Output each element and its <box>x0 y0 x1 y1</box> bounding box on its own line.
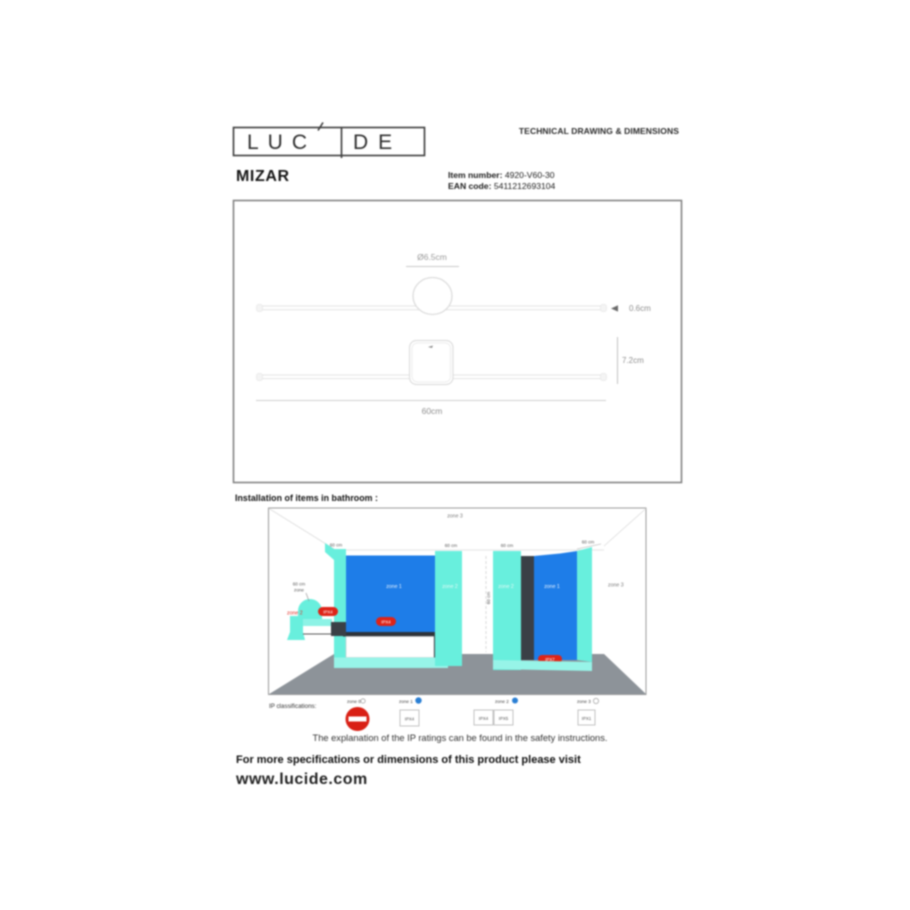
svg-text:0.6cm: 0.6cm <box>629 304 651 313</box>
svg-text:60 cm: 60 cm <box>293 582 306 587</box>
svg-text:60 cm: 60 cm <box>330 543 343 548</box>
svg-text:60 cm: 60 cm <box>501 543 514 548</box>
svg-text:IPX4: IPX4 <box>323 610 333 615</box>
svg-text:60 cm: 60 cm <box>486 592 491 605</box>
svg-text:60cm: 60cm <box>422 406 443 416</box>
svg-text:zone: zone <box>294 588 304 593</box>
svg-text:zone 3: zone 3 <box>577 699 591 704</box>
svg-text:60 cm: 60 cm <box>582 540 595 545</box>
svg-text:zone 2: zone 2 <box>495 699 509 704</box>
svg-text:IPX1: IPX1 <box>582 716 592 721</box>
svg-text:IP classifications:: IP classifications: <box>269 703 317 710</box>
svg-text:IPX4: IPX4 <box>381 620 391 625</box>
svg-text:7.2cm: 7.2cm <box>622 356 644 365</box>
svg-text:zone 0: zone 0 <box>347 699 361 704</box>
svg-text:zone 1: zone 1 <box>544 584 560 590</box>
svg-text:IPX4: IPX4 <box>479 716 489 721</box>
svg-text:zone 3: zone 3 <box>447 514 463 520</box>
svg-text:LUC: LUC <box>247 131 316 154</box>
svg-text:zone 2: zone 2 <box>442 584 458 590</box>
svg-text:zone 3: zone 3 <box>608 583 624 589</box>
svg-text:Ø6.5cm: Ø6.5cm <box>417 252 447 262</box>
svg-text:IPX5: IPX5 <box>499 716 509 721</box>
svg-text:IPX4: IPX4 <box>405 717 415 722</box>
svg-text:zone 2: zone 2 <box>498 584 514 590</box>
svg-text:60 cm: 60 cm <box>445 543 458 548</box>
svg-text:DE: DE <box>353 131 402 154</box>
svg-text:zone 2: zone 2 <box>287 611 303 617</box>
svg-text:zone 1: zone 1 <box>399 699 413 704</box>
svg-text:zone 1: zone 1 <box>386 584 402 590</box>
